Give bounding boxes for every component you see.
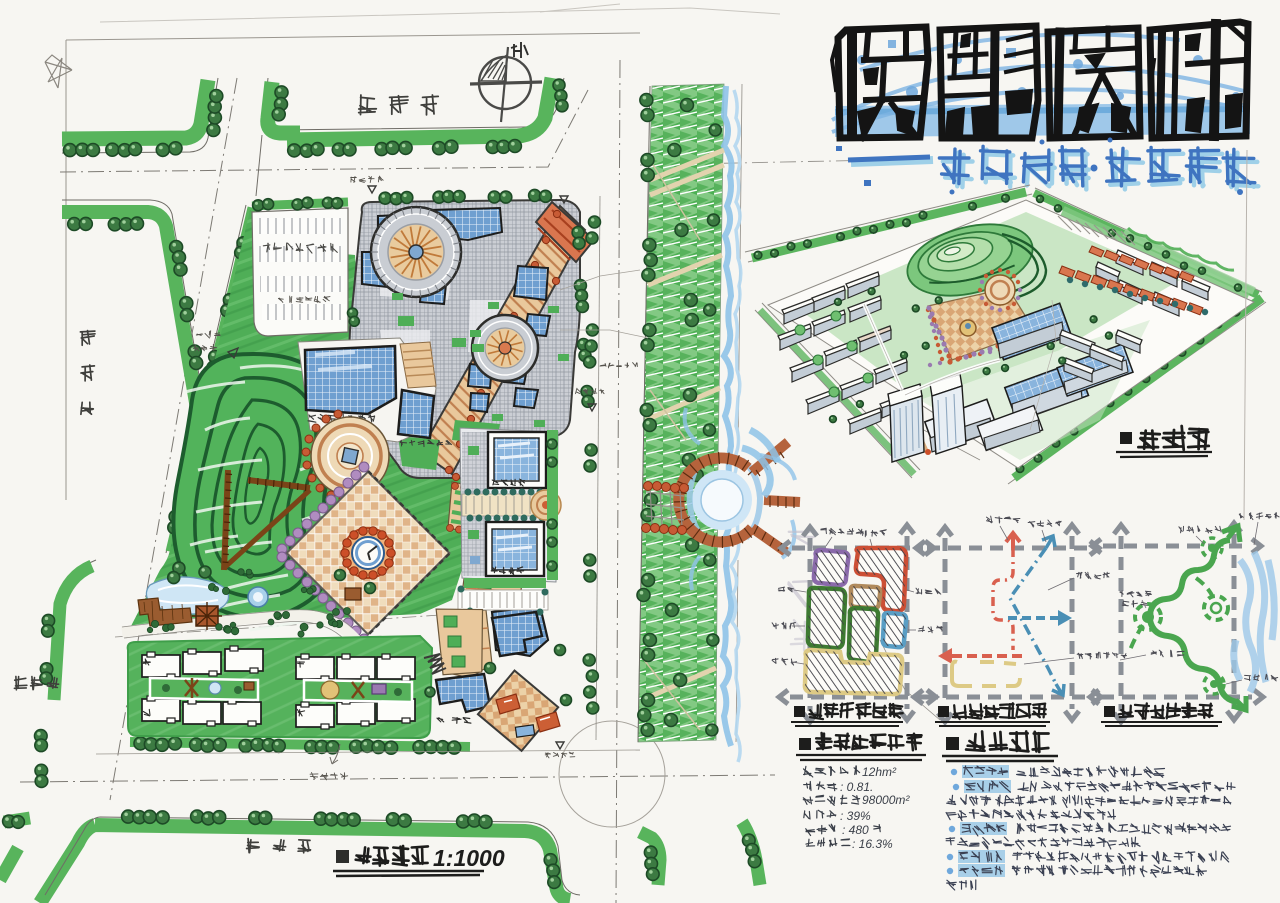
svg-text:: 480: : 480 <box>842 823 869 837</box>
svg-text:12hm²: 12hm² <box>862 765 897 779</box>
svg-text:: 39%: : 39% <box>840 809 871 823</box>
svg-text:98000m²: 98000m² <box>862 793 910 807</box>
svg-text:1:1000: 1:1000 <box>433 845 505 871</box>
svg-text:: 0.81.: : 0.81. <box>840 780 873 794</box>
svg-text:: 16.3%: : 16.3% <box>852 837 893 851</box>
